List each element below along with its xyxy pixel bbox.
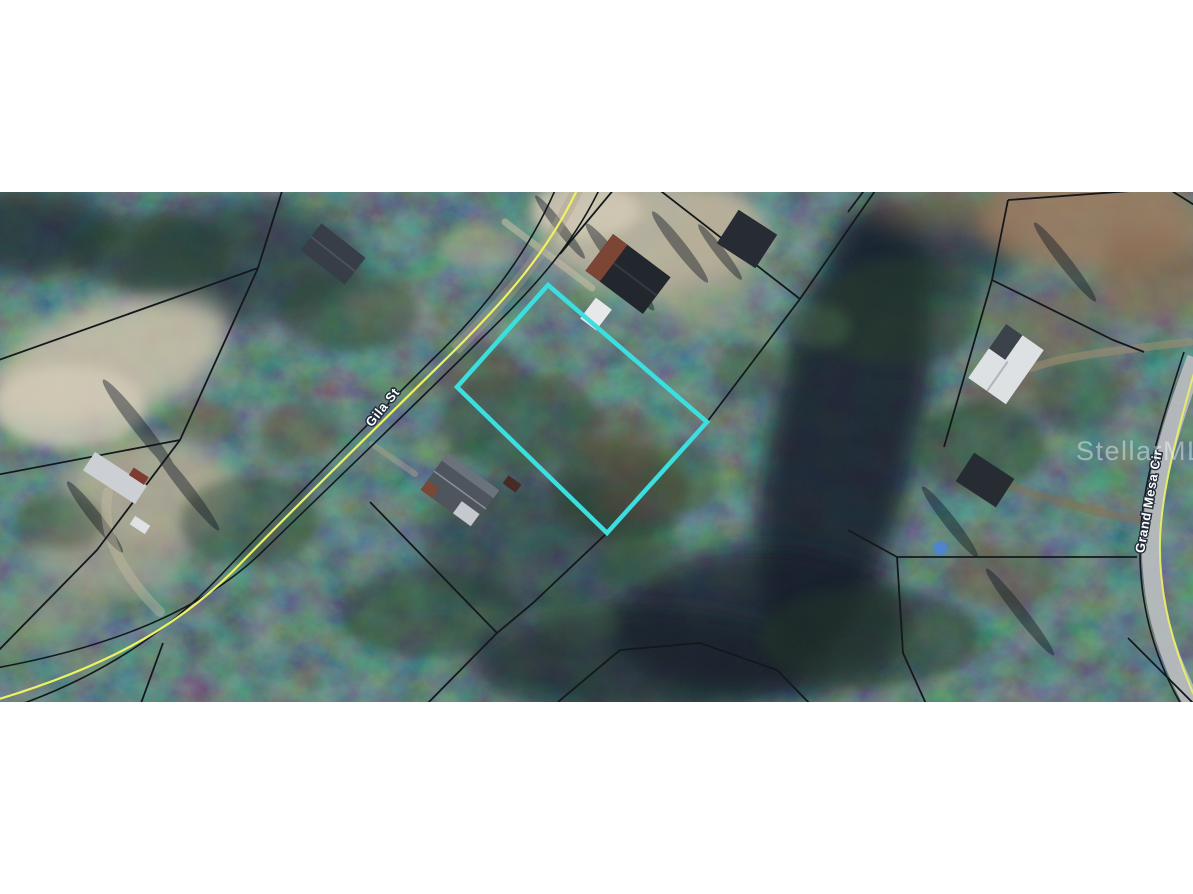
letterbox-bottom — [0, 702, 1193, 894]
satellite-map-canvas: Gila St Grand Mesa Cir StellarMLS — [0, 192, 1193, 702]
letterbox-top — [0, 0, 1193, 192]
listing-photo: Gila St Grand Mesa Cir StellarMLS — [0, 0, 1193, 894]
mls-watermark: StellarMLS — [1076, 436, 1193, 466]
blue-tarp — [933, 541, 947, 555]
satellite-map[interactable]: Gila St Grand Mesa Cir StellarMLS — [0, 192, 1193, 702]
